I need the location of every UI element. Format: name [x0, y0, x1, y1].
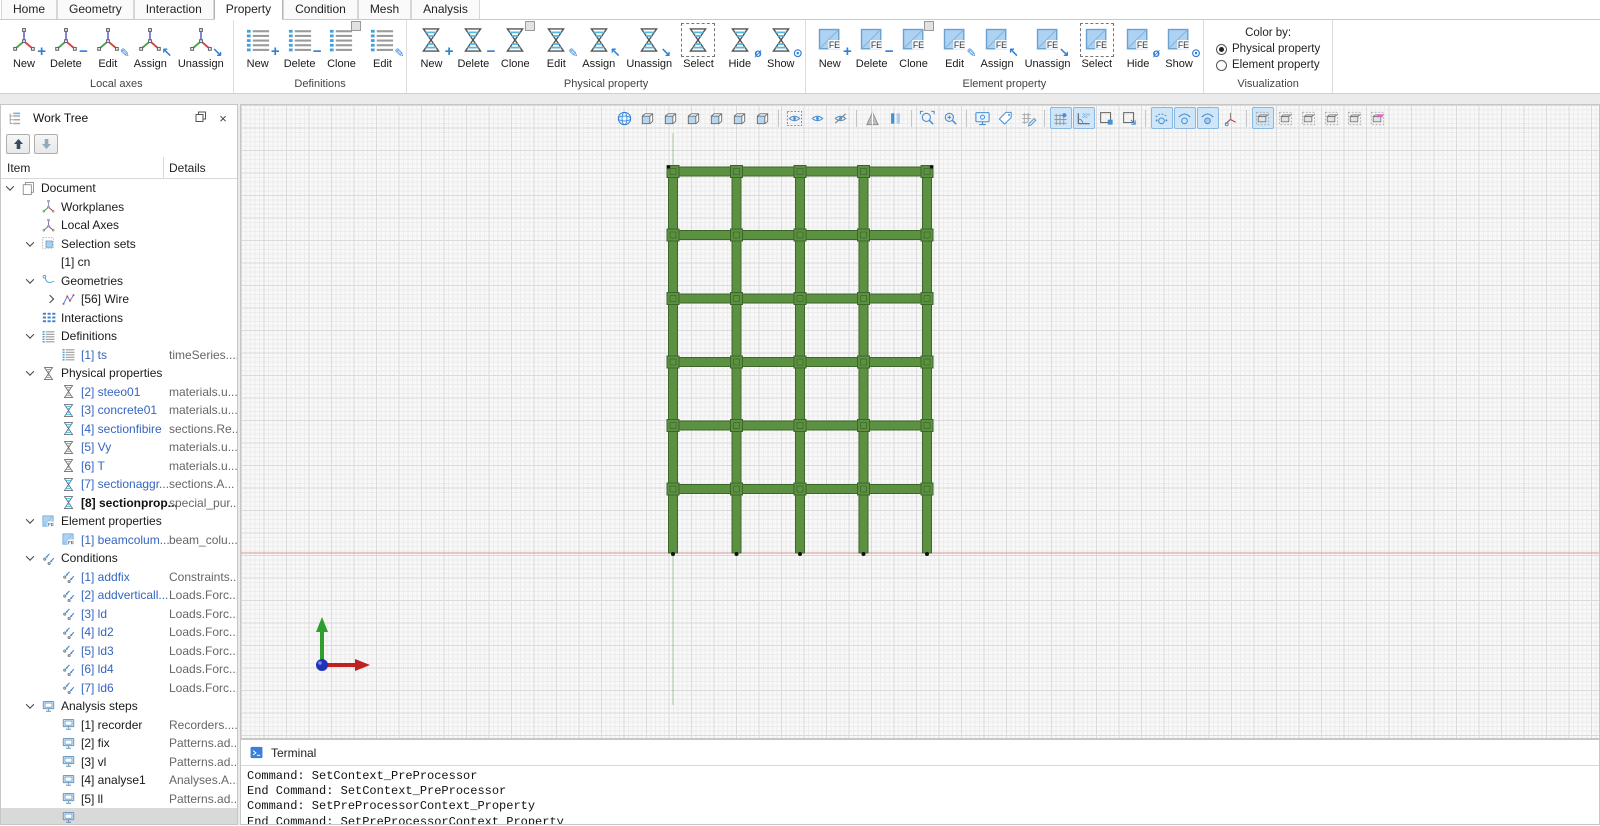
tree-item-7-ld6[interactable]: [7] ld6Loads.Forc... — [1, 679, 237, 698]
fe-square-icon: FE — [815, 25, 845, 55]
tree-item-label: [6] ld4 — [81, 662, 114, 676]
clone-modifier-icon — [924, 21, 934, 31]
bottom-view-icon[interactable] — [752, 107, 774, 129]
tree-item-3-concrete01[interactable]: [3] concrete01materials.u... — [1, 401, 237, 420]
work-tree-title: Work Tree — [33, 111, 187, 125]
local-axes-icon — [9, 25, 39, 55]
show-modifier-icon — [1191, 46, 1201, 59]
tree-item-details: Patterns.ad... — [169, 792, 238, 806]
analysis-icon — [61, 791, 76, 806]
tree-item-label: Selection sets — [61, 237, 136, 251]
show-vertices-icon[interactable] — [1151, 107, 1173, 129]
work-tree-titlebar: Work Tree × — [1, 105, 237, 131]
svg-text:FE: FE — [48, 522, 54, 527]
hourglass-icon — [766, 25, 796, 55]
parallel-view-icon[interactable] — [885, 107, 907, 129]
conditions-icon — [61, 606, 76, 621]
viewport-3d[interactable]: 32° — [240, 104, 1600, 739]
edit-modifier-icon — [120, 46, 130, 59]
plus-modifier-icon — [843, 44, 852, 59]
physical-property-hide-button[interactable]: Hide — [720, 21, 760, 72]
hide-modifier-icon — [754, 46, 761, 59]
local-axes-new-button[interactable]: New — [4, 21, 44, 72]
element-property-assign-button[interactable]: FEAssign — [976, 21, 1019, 72]
show-modifier-icon — [793, 46, 803, 59]
local-axes-icon — [41, 218, 56, 233]
toolbar-separator — [856, 110, 857, 127]
tree-item-details: materials.u... — [169, 459, 238, 473]
element-property-unassign-button[interactable]: FEUnassign — [1020, 21, 1076, 72]
tree-item-geometries[interactable]: Geometries — [1, 272, 237, 291]
zoom-in-icon[interactable] — [940, 107, 962, 129]
fe-square-icon: FE — [1123, 25, 1153, 55]
tree-item-2-addverticall[interactable]: [2] addverticall...Loads.Forc... — [1, 586, 237, 605]
tab-home[interactable]: Home — [1, 0, 57, 19]
tree-item-local-axes[interactable]: Local Axes — [1, 216, 237, 235]
conditions-icon — [61, 643, 76, 658]
physical-icon — [61, 384, 76, 399]
clip-box-icon[interactable] — [1096, 107, 1118, 129]
tree-item-label: [1] beamcolum... — [81, 533, 170, 547]
clone-modifier-icon — [525, 21, 535, 31]
tree-item-label: [7] ld6 — [81, 681, 114, 695]
tree-item-2-fix[interactable]: [2] fixPatterns.ad... — [1, 734, 237, 753]
tree-item-7-sectionaggr[interactable]: [7] sectionaggr...sections.A... — [1, 475, 237, 494]
tree-item-6-ld4[interactable]: [6] ld4Loads.Forc... — [1, 660, 237, 679]
tree-item-1-addfix[interactable]: [1] addfixConstraints... — [1, 568, 237, 587]
unassign-modifier-icon — [1059, 46, 1070, 59]
geometries-icon — [41, 273, 56, 288]
analysis-icon — [61, 736, 76, 751]
tree-item-details: Loads.Forc... — [169, 644, 238, 658]
selection-sets-icon — [41, 236, 56, 251]
physical-icon — [61, 458, 76, 473]
tree-item-label: Definitions — [61, 329, 117, 343]
tree-item-interactions[interactable]: Interactions — [1, 309, 237, 328]
tree-item-details: beam_colu... — [169, 533, 238, 547]
svg-text:FE: FE — [829, 40, 840, 50]
group-label: Definitions — [238, 77, 403, 93]
unassign-modifier-icon — [212, 46, 223, 59]
physical-property-clone-button[interactable]: Clone — [495, 21, 535, 72]
expander-down-icon[interactable] — [26, 553, 34, 561]
list-icon — [285, 25, 315, 55]
tree-item-5-ld3[interactable]: [5] ld3Loads.Forc... — [1, 642, 237, 661]
svg-text:FE: FE — [1096, 40, 1107, 50]
show-faces-icon[interactable] — [1197, 107, 1219, 129]
analysis-icon — [41, 699, 56, 714]
list-icon — [367, 25, 397, 55]
element-icon: FE — [41, 514, 56, 529]
tab-mesh[interactable]: Mesh — [358, 0, 411, 19]
expander-right-icon[interactable] — [46, 295, 54, 303]
tree-item-label: [1] cn — [61, 255, 90, 269]
terminal-line: End Command: SetContext_PreProcessor — [247, 784, 1593, 799]
tree-item-label: [3] ld — [81, 607, 107, 621]
hide-modifier-icon — [1153, 46, 1160, 59]
physical-icon — [41, 366, 56, 381]
physical-icon — [61, 495, 76, 510]
analysis-icon — [61, 773, 76, 788]
tree-item-label: Element properties — [61, 514, 162, 528]
fe-square-icon: FE — [857, 25, 887, 55]
toolbar-separator — [1044, 110, 1045, 127]
hourglass-icon — [634, 25, 664, 55]
tree-item-details: Recorders.... — [169, 718, 238, 732]
slice-select-icon[interactable] — [1252, 107, 1274, 129]
toolbar-separator — [911, 110, 912, 127]
group-label: Local axes — [4, 77, 229, 93]
conditions-icon — [61, 680, 76, 695]
top-view-icon[interactable] — [729, 107, 751, 129]
document-icon — [21, 181, 36, 196]
analysis-icon — [61, 717, 76, 732]
conditions-icon — [41, 551, 56, 566]
tree-item-2-steeo01[interactable]: [2] steeo01materials.u... — [1, 383, 237, 402]
tree-item-5-ll[interactable]: [5] llPatterns.ad... — [1, 790, 237, 809]
toolbar-separator — [1145, 110, 1146, 127]
terminal-panel: Terminal Command: SetContext_PreProcesso… — [240, 739, 1600, 825]
physical-icon — [61, 421, 76, 436]
tree-item-partial[interactable] — [1, 808, 237, 825]
workplanes-icon — [41, 199, 56, 214]
tree-item-label: [2] addverticall... — [81, 588, 168, 602]
tree-item-1-cn[interactable]: [1] cn — [1, 253, 237, 272]
move-up-button[interactable] — [6, 134, 30, 154]
definitions-delete-button[interactable]: Delete — [279, 21, 321, 72]
details-column-header[interactable]: Details — [163, 157, 237, 178]
ribbon-group-local-axes: NewDeleteEditAssignUnassignLocal axes — [0, 20, 234, 93]
tree-item-details: Loads.Forc... — [169, 625, 238, 639]
slice-box-3-icon[interactable] — [1321, 107, 1343, 129]
perspective-view-icon[interactable] — [862, 107, 884, 129]
tree-item-label: [1] addfix — [81, 570, 130, 584]
fe-square-icon: FE — [982, 25, 1012, 55]
minus-modifier-icon — [885, 44, 894, 59]
hourglass-icon — [458, 25, 488, 55]
ribbon-group-definitions: NewDeleteCloneEditDefinitions — [234, 20, 408, 93]
ribbon-group-element-property: FENewFEDeleteFECloneFEEditFEAssignFEUnas… — [806, 20, 1204, 93]
edit-modifier-icon — [394, 46, 404, 59]
hide-selected-icon[interactable] — [830, 107, 852, 129]
tree-item-label: [5] Vy — [81, 440, 111, 454]
tab-interaction[interactable]: Interaction — [134, 0, 214, 19]
definitions-clone-button[interactable]: Clone — [321, 21, 361, 72]
tree-item-4-ld2[interactable]: [4] ld2Loads.Forc... — [1, 623, 237, 642]
ribbon-tab-bar: HomeGeometryInteractionPropertyCondition… — [0, 0, 1600, 20]
tree-item-details: Patterns.ad... — [169, 755, 238, 769]
conditions-icon — [61, 625, 76, 640]
tree-item-label: Geometries — [61, 274, 123, 288]
tree-item-details: Loads.Forc... — [169, 662, 238, 676]
expander-down-icon[interactable] — [26, 275, 34, 283]
tree-item-details: Analyses.A... — [169, 773, 238, 787]
tree-item-details: materials.u... — [169, 440, 238, 454]
edit-modifier-icon — [966, 46, 976, 59]
tree-item-physical-properties[interactable]: Physical properties — [1, 364, 237, 383]
clone-modifier-icon — [351, 21, 361, 31]
conditions-icon — [61, 569, 76, 584]
tree-item-label: [3] vl — [81, 755, 106, 769]
tree-item-1-beamcolum[interactable]: FE[1] beamcolum...beam_colu... — [1, 531, 237, 550]
tree-item-4-analyse1[interactable]: [4] analyse1Analyses.A... — [1, 771, 237, 790]
terminal-line: Command: SetPreProcessorContext_Property — [247, 799, 1593, 814]
fe-square-icon: FE — [1164, 25, 1194, 55]
physical-icon — [61, 440, 76, 455]
minus-modifier-icon — [313, 44, 322, 59]
tree-item-definitions[interactable]: Definitions — [1, 327, 237, 346]
item-column-header[interactable]: Item — [1, 161, 163, 175]
definitions-icon — [61, 347, 76, 362]
tree-item-1-ts[interactable]: [1] tstimeSeries.... — [1, 346, 237, 365]
tab-geometry[interactable]: Geometry — [57, 0, 134, 19]
tree-item-label: [5] ld3 — [81, 644, 114, 658]
tree-item-label: [3] concrete01 — [81, 403, 157, 417]
tree-item-details: materials.u... — [169, 403, 238, 417]
toolbar-separator — [966, 110, 967, 127]
slice-box-4-icon[interactable] — [1344, 107, 1366, 129]
expander-down-icon[interactable] — [26, 331, 34, 339]
tab-property[interactable]: Property — [214, 0, 283, 20]
tree-item-label: Workplanes — [61, 200, 124, 214]
physical-property-edit-button[interactable]: Edit — [536, 21, 576, 72]
svg-text:FE: FE — [1046, 40, 1057, 50]
assign-modifier-icon — [610, 46, 621, 59]
tree-item-details: Loads.Forc... — [169, 588, 238, 602]
definitions-edit-button[interactable]: Edit — [362, 21, 402, 72]
terminal-output[interactable]: Command: SetContext_PreProcessorEnd Comm… — [241, 766, 1599, 825]
tree-item-label: Analysis steps — [61, 699, 138, 713]
zoom-fit-icon[interactable] — [917, 107, 939, 129]
wire-icon — [61, 292, 76, 307]
tree-item-document[interactable]: Document — [1, 179, 237, 198]
color-by-element-property-radio[interactable]: Element property — [1216, 59, 1320, 71]
expander-down-icon[interactable] — [26, 701, 34, 709]
physical-property-unassign-button[interactable]: Unassign — [621, 21, 677, 72]
float-panel-icon[interactable] — [193, 111, 209, 126]
element-property-edit-button[interactable]: FEEdit — [935, 21, 975, 72]
annotations-icon[interactable] — [995, 107, 1017, 129]
viewport-toolbar: 32° — [613, 107, 1389, 129]
tree-item-analysis-steps[interactable]: Analysis steps — [1, 697, 237, 716]
group-label: Visualization — [1208, 77, 1328, 93]
show-edges-icon[interactable] — [1174, 107, 1196, 129]
hourglass-icon — [541, 25, 571, 55]
svg-text:FE: FE — [1137, 40, 1148, 50]
expander-down-icon[interactable] — [26, 516, 34, 524]
svg-text:FE: FE — [870, 40, 881, 50]
fe-square-icon: FE — [940, 25, 970, 55]
tree-item-1-recorder[interactable]: [1] recorderRecorders.... — [1, 716, 237, 735]
list-icon — [243, 25, 273, 55]
tree-item-label: [4] ld2 — [81, 625, 114, 639]
ribbon: NewDeleteEditAssignUnassignLocal axesNew… — [0, 20, 1600, 94]
svg-text:FE: FE — [953, 40, 964, 50]
hourglass-icon — [683, 25, 713, 55]
expander-down-icon[interactable] — [26, 368, 34, 376]
element-property-new-button[interactable]: FENew — [810, 21, 850, 72]
terminal-line: End Command: SetPreProcessorContext_Prop… — [247, 815, 1593, 825]
tree-item-details: Loads.Forc... — [169, 607, 238, 621]
tree-item-label: Local Axes — [61, 218, 119, 232]
svg-text:FE: FE — [68, 540, 74, 545]
work-tree-rows: DocumentWorkplanesLocal AxesSelection se… — [1, 179, 237, 825]
local-axes-unassign-button[interactable]: Unassign — [173, 21, 229, 72]
element-property-clone-button[interactable]: FEClone — [894, 21, 934, 72]
element-property-show-button[interactable]: FEShow — [1159, 21, 1199, 72]
tree-item-details: sections.Re... — [169, 422, 238, 436]
physical-property-select-button[interactable]: Select — [678, 21, 719, 72]
left-view-icon[interactable] — [683, 107, 705, 129]
back-view-icon[interactable] — [660, 107, 682, 129]
toolbar-separator — [778, 110, 779, 127]
clip-box-edit-icon[interactable] — [1119, 107, 1141, 129]
tree-item-4-sectionfibire[interactable]: [4] sectionfibiresections.Re... — [1, 420, 237, 439]
tree-item-56-wire[interactable]: [56] Wire — [1, 290, 237, 309]
tree-item-details: timeSeries.... — [169, 348, 238, 362]
local-axes-assign-button[interactable]: Assign — [129, 21, 172, 72]
tree-item-label: [7] sectionaggr... — [81, 477, 169, 491]
edit-modifier-icon — [568, 46, 578, 59]
tab-condition[interactable]: Condition — [283, 0, 358, 19]
tree-item-label: [2] steeo01 — [81, 385, 140, 399]
expander-down-icon[interactable] — [6, 183, 14, 191]
element-property-hide-button[interactable]: FEHide — [1118, 21, 1158, 72]
tree-item-3-ld[interactable]: [3] ldLoads.Forc... — [1, 605, 237, 624]
display-options-icon[interactable] — [972, 107, 994, 129]
definitions-new-button[interactable]: New — [238, 21, 278, 72]
ribbon-group-physical-property: NewDeleteCloneEditAssignUnassignSelectHi… — [407, 20, 805, 93]
assign-modifier-icon — [161, 46, 172, 59]
list-icon — [326, 25, 356, 55]
color-by-physical-property-radio[interactable]: Physical property — [1216, 43, 1320, 55]
physical-property-assign-button[interactable]: Assign — [577, 21, 620, 72]
element-property-delete-button[interactable]: FEDelete — [851, 21, 893, 72]
local-axes-edit-button[interactable]: Edit — [88, 21, 128, 72]
terminal-icon — [249, 745, 264, 760]
tree-item-label: [4] analyse1 — [81, 773, 146, 787]
svg-text:FE: FE — [1178, 40, 1189, 50]
tree-item-workplanes[interactable]: Workplanes — [1, 198, 237, 217]
radio-icon[interactable] — [1216, 60, 1227, 71]
tab-analysis[interactable]: Analysis — [411, 0, 480, 19]
tree-item-label: [1] ts — [81, 348, 107, 362]
tree-item-label: [56] Wire — [81, 292, 129, 306]
isometric-view-icon[interactable] — [614, 107, 636, 129]
analysis-icon — [61, 810, 76, 825]
tree-item-5-vy[interactable]: [5] Vymaterials.u... — [1, 438, 237, 457]
structure-canvas[interactable] — [241, 105, 1600, 739]
tree-item-6-t[interactable]: [6] Tmaterials.u... — [1, 457, 237, 476]
tree-item-conditions[interactable]: Conditions — [1, 549, 237, 568]
minus-modifier-icon — [487, 44, 496, 59]
minus-modifier-icon — [79, 44, 88, 59]
physical-property-show-button[interactable]: Show — [761, 21, 801, 72]
plus-modifier-icon — [271, 44, 280, 59]
terminal-titlebar: Terminal — [241, 740, 1599, 766]
work-tree-column-headers: Item Details — [1, 157, 237, 179]
local-axes-icon — [51, 25, 81, 55]
slice-colors-icon[interactable] — [1367, 107, 1389, 129]
tree-item-label: [5] ll — [81, 792, 103, 806]
tree-item-3-vl[interactable]: [3] vlPatterns.ad... — [1, 753, 237, 772]
right-view-icon[interactable] — [706, 107, 728, 129]
workspace: Work Tree × Item Details DocumentWorkpla… — [0, 94, 1600, 825]
select-visibility-icon[interactable] — [784, 107, 806, 129]
fe-square-icon: FE — [1082, 25, 1112, 55]
expander-down-icon[interactable] — [26, 238, 34, 246]
fe-square-icon: FE — [1033, 25, 1063, 55]
hourglass-icon — [725, 25, 755, 55]
physical-icon — [61, 403, 76, 418]
work-tree-panel: Work Tree × Item Details DocumentWorkpla… — [0, 104, 238, 825]
work-tree-icon — [7, 111, 22, 126]
radio-icon[interactable] — [1216, 44, 1227, 55]
tree-item-label: [8] sectionprop... — [81, 496, 178, 510]
assign-modifier-icon — [1008, 46, 1019, 59]
grid-toggle-icon[interactable] — [1050, 107, 1072, 129]
tree-item-label: Conditions — [61, 551, 118, 565]
analysis-icon — [61, 754, 76, 769]
tree-item-details: special_pur... — [169, 496, 238, 510]
edit-grid-icon[interactable] — [1018, 107, 1040, 129]
angle-snap-icon[interactable]: 32° — [1073, 107, 1095, 129]
terminal-title: Terminal — [271, 746, 316, 760]
conditions-icon — [61, 588, 76, 603]
svg-text:32°: 32° — [1082, 113, 1090, 119]
slice-box-2-icon[interactable] — [1298, 107, 1320, 129]
tree-item-label: [6] T — [81, 459, 105, 473]
tree-item-label: [1] recorder — [81, 718, 142, 732]
interactions-icon — [41, 310, 56, 325]
work-tree-toolbar — [1, 131, 237, 157]
tree-item-label: [4] sectionfibire — [81, 422, 162, 436]
tree-item-details: materials.u... — [169, 385, 238, 399]
physical-property-new-button[interactable]: New — [411, 21, 451, 72]
front-view-icon[interactable] — [637, 107, 659, 129]
element-property-select-button[interactable]: FESelect — [1076, 21, 1117, 72]
local-axes-delete-button[interactable]: Delete — [45, 21, 87, 72]
move-down-button[interactable] — [34, 134, 58, 154]
physical-property-delete-button[interactable]: Delete — [452, 21, 494, 72]
tree-item-selection-sets[interactable]: Selection sets — [1, 235, 237, 254]
ribbon-group-visualization: Color by:Physical propertyElement proper… — [1204, 20, 1333, 93]
tree-item-label: Interactions — [61, 311, 123, 325]
show-selected-icon[interactable] — [807, 107, 829, 129]
tree-item-8-sectionprop[interactable]: [8] sectionprop...special_pur... — [1, 494, 237, 513]
svg-text:FE: FE — [912, 40, 923, 50]
definitions-icon — [41, 329, 56, 344]
local-axes-icon — [186, 25, 216, 55]
slice-box-1-icon[interactable] — [1275, 107, 1297, 129]
svg-text:FE: FE — [996, 40, 1007, 50]
tree-item-label: Physical properties — [61, 366, 162, 380]
hourglass-icon — [584, 25, 614, 55]
tree-item-details: Patterns.ad... — [169, 736, 238, 750]
element-icon: FE — [61, 532, 76, 547]
tree-item-element-properties[interactable]: FEElement properties — [1, 512, 237, 531]
tree-item-details: Loads.Forc... — [169, 681, 238, 695]
plus-modifier-icon — [445, 44, 454, 59]
conditions-icon — [61, 662, 76, 677]
terminal-line: Command: SetContext_PreProcessor — [247, 769, 1593, 784]
close-panel-icon[interactable]: × — [215, 111, 231, 126]
tree-item-details: sections.A... — [169, 477, 234, 491]
tree-item-label: Document — [41, 181, 96, 195]
tree-item-label: [2] fix — [81, 736, 110, 750]
unassign-modifier-icon — [660, 46, 671, 59]
show-local-axes-icon[interactable] — [1220, 107, 1242, 129]
